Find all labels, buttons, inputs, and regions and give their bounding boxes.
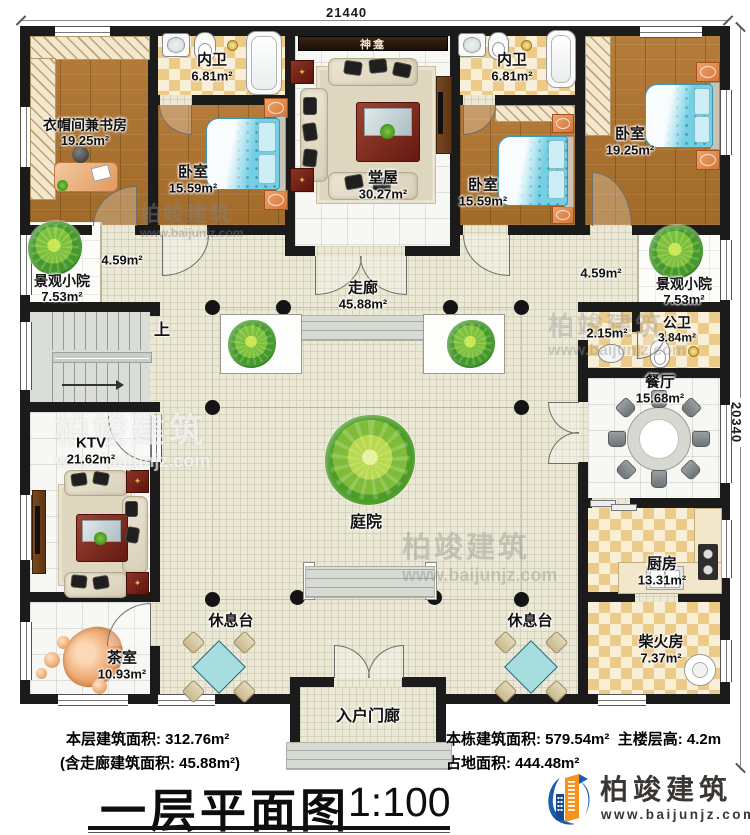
pillow [694, 116, 710, 143]
window [720, 240, 732, 300]
room-label-bath-left: 内卫6.81m² [191, 52, 232, 83]
nightstand [264, 190, 288, 210]
room-label-bedroom-left: 卧室15.59m² [169, 164, 217, 195]
table-plant-icon [94, 532, 107, 545]
wall-tea-right [150, 646, 160, 694]
wall-dining-left-a [578, 378, 588, 402]
wall-outer-top [20, 26, 730, 36]
nightstand [696, 150, 720, 170]
wall-porch-top-left [292, 677, 334, 687]
watermark: 柏竣建筑 www.baijunjz.com [402, 532, 557, 586]
wall-bath-left-a [148, 95, 160, 105]
column [443, 300, 458, 315]
wall-ktv-right [150, 462, 160, 594]
watermark: 柏竣建筑 www.baijunjz.com [140, 203, 244, 241]
pillow [258, 122, 276, 152]
pebble [44, 652, 60, 668]
wall-dining-left-b [578, 462, 588, 498]
room-label-rest-left: 休息台 [208, 614, 253, 631]
wall-hall-bottom-b [405, 246, 460, 256]
desk-chair [72, 146, 89, 163]
courtyard-right-edge [637, 232, 639, 302]
tv-icon [438, 92, 443, 134]
window [640, 26, 702, 38]
room-label-rest-right: 休息台 [507, 614, 552, 631]
ktv-side-table [126, 470, 149, 493]
stat-land-area: 占地面积: 444.48m² [446, 752, 579, 773]
room-label-courtyard: 庭院 [350, 514, 382, 532]
pebble [36, 668, 47, 679]
room-label-dining: 餐厅15.68m² [636, 374, 684, 405]
ktv-side-table [126, 572, 149, 595]
window [720, 90, 732, 155]
entrance-steps [286, 742, 452, 770]
wall-hall-bottom-a [285, 246, 315, 256]
dining-chair [651, 470, 667, 488]
nightstand [264, 98, 288, 118]
company-logo-name: 柏竣建筑 [600, 776, 732, 804]
window [720, 405, 732, 483]
pebble [57, 636, 70, 649]
room-label-ktv: KTV21.62m² [67, 435, 115, 466]
tv-icon [35, 506, 40, 554]
wall-bath-right-b [495, 95, 575, 105]
cushion [71, 575, 86, 587]
column [205, 300, 220, 315]
stair-rail [52, 352, 152, 363]
cushion [126, 502, 137, 516]
stat-floor-area: 本层建筑面积: 312.76m² [66, 728, 229, 749]
pillow [694, 88, 710, 115]
pillow [258, 154, 276, 184]
shrine-label: 神龛 [360, 36, 386, 52]
column [514, 400, 529, 415]
nightstand [696, 62, 720, 82]
wall-bedroom-right-bottom-a [585, 225, 590, 235]
dining-table [627, 407, 691, 471]
cushion [344, 61, 362, 75]
cushion [93, 576, 109, 589]
cloakroom-closet [30, 36, 150, 60]
pillow [548, 170, 565, 199]
wall-bedroom-mid-bottom-b [508, 225, 575, 235]
area-label-wash: 2.15m² [586, 327, 627, 342]
watermark-site: www.baijunjz.com [402, 565, 557, 586]
wall-kitchen-top-b [630, 498, 730, 508]
sink [458, 33, 486, 57]
stair-flight-up [52, 312, 150, 350]
shrine-cabinet: 神龛 [298, 36, 448, 51]
column [205, 592, 220, 607]
hall-side-table [290, 60, 314, 84]
window [58, 694, 128, 706]
lamp-icon [521, 40, 532, 51]
room-label-bath-right: 内卫6.81m² [491, 52, 532, 83]
sink [162, 33, 190, 57]
cushion [126, 527, 139, 543]
bathtub [246, 31, 282, 95]
bedroom-right-closet [585, 36, 611, 136]
bathtub [546, 30, 576, 88]
cushion [93, 472, 109, 485]
room-label-cloakroom: 衣帽间兼书房19.25m² [43, 118, 127, 148]
room-label-small-courtyard-right: 景观小院7.53m² [656, 277, 712, 307]
watermark-site: www.baijunjz.com [140, 227, 244, 241]
drawing-scale: 1:100 [348, 779, 451, 826]
window [20, 622, 32, 680]
wall-cloakroom-right [148, 36, 158, 230]
column [514, 592, 529, 607]
desk-plant-icon [57, 180, 68, 191]
room-label-bedroom-right: 卧室19.25m² [606, 126, 654, 157]
lamp-icon [227, 40, 238, 51]
wall-outer-bottom-right [444, 694, 730, 704]
wall-bath-right-a [455, 95, 463, 105]
wall-porch-top-right [402, 677, 444, 687]
room-label-tea-room: 茶室10.93m² [98, 650, 146, 681]
wall-stair-bottom [20, 402, 160, 412]
area-label-corridor-left: 4.59m² [101, 254, 142, 269]
room-label-small-courtyard-left: 景观小院7.53m² [34, 274, 90, 304]
hall-side-table [290, 168, 314, 192]
room-label-porch: 入户门廊 [336, 708, 400, 726]
door-kitchen-slide [611, 504, 637, 511]
courtyard-line [212, 407, 520, 408]
wall-bedroom-mid-bottom-a [455, 225, 463, 235]
column [514, 300, 529, 315]
stove [698, 544, 718, 580]
company-logo-icon [543, 772, 595, 826]
top-dimension-line [22, 20, 728, 21]
cushion [303, 123, 317, 141]
wall-stair-right-stub [150, 302, 160, 316]
cushion [304, 98, 316, 114]
firewood-stove [684, 654, 716, 686]
cushion [369, 59, 386, 73]
label-stairs-up: 上 [154, 322, 170, 340]
window [20, 322, 32, 390]
title-underline [88, 826, 450, 830]
cushion [71, 473, 86, 486]
cushion [303, 149, 317, 166]
stair-arrow-head [116, 380, 124, 390]
stat-floor-height: 主楼层高: 4.2m [618, 731, 721, 748]
nightstand [552, 114, 574, 133]
dining-chair [692, 431, 710, 447]
dining-chair [608, 431, 626, 447]
nightstand [552, 206, 574, 224]
pillow [548, 140, 565, 169]
room-label-corridor: 走廊45.88m² [339, 280, 387, 311]
wall-bedroom-right-left [575, 36, 585, 235]
lamp-icon [688, 346, 699, 357]
company-logo-site: www.baijunjz.com [601, 808, 750, 822]
room-label-firewood: 柴火房7.37m² [638, 634, 683, 665]
watermark-brand: 柏竣建筑 [140, 203, 244, 227]
window [598, 694, 646, 706]
stair-flight-down [52, 363, 150, 402]
room-label-bedroom-mid: 卧室15.59m² [459, 177, 507, 208]
floor-plan: 21440 20340 [0, 0, 750, 835]
corridor-step-platform [300, 315, 424, 341]
area-label-corridor-right: 4.59m² [580, 267, 621, 282]
stat-building-area: 本栋建筑面积: 579.54m² 主楼层高: 4.2m [446, 728, 721, 749]
stair-arrow-line [62, 384, 118, 386]
room-label-hall: 堂屋30.27m² [359, 170, 407, 201]
watermark-site: www.baijunjz.com [548, 342, 686, 360]
table-plant-icon [380, 124, 395, 139]
room-label-kitchen: 厨房13.31m² [638, 556, 686, 587]
window [720, 640, 732, 682]
watermark-brand: 柏竣建筑 [402, 532, 557, 565]
stat-corridor-area: (含走廊建筑面积: 45.88m²) [60, 752, 240, 773]
top-dimension-label: 21440 [322, 5, 371, 20]
column [276, 300, 291, 315]
room-label-public-bath: 公卫3.84m² [658, 315, 696, 344]
window [20, 495, 32, 560]
